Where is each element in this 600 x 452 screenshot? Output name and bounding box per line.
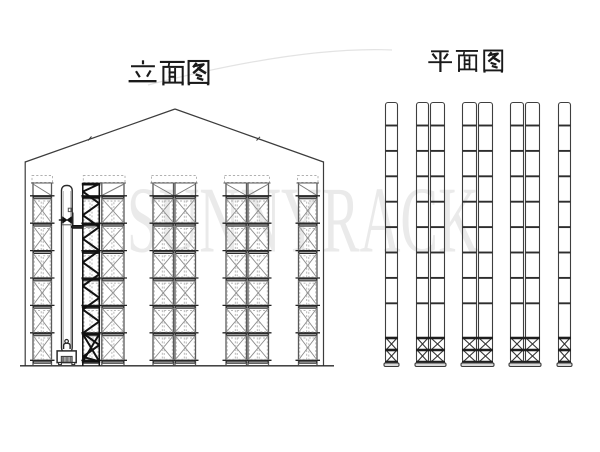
svg-text:SUNNYRACK: SUNNYRACK — [127, 169, 479, 273]
